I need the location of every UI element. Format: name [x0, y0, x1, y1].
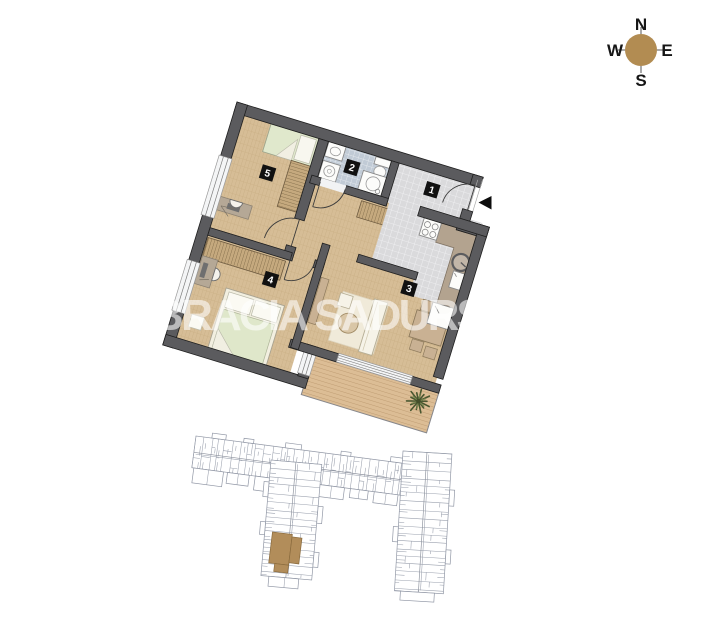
svg-text:E: E [661, 41, 672, 60]
svg-text:W: W [607, 41, 624, 60]
svg-text:S: S [635, 71, 646, 90]
svg-text:N: N [635, 15, 647, 34]
